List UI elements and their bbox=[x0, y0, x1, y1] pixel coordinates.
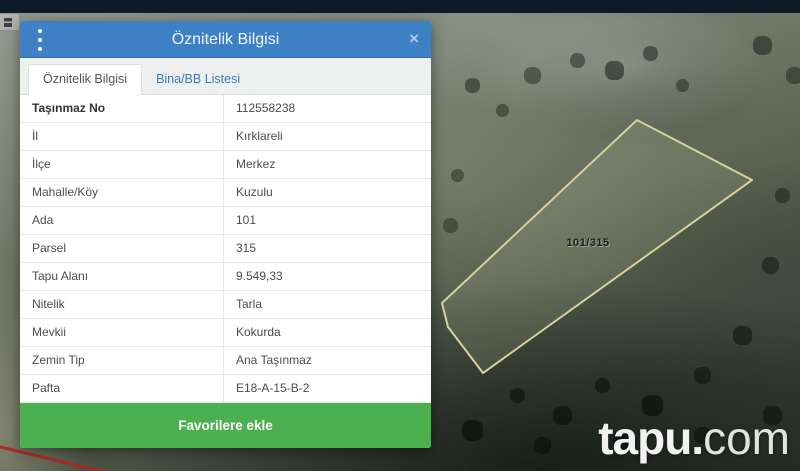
attribute-table: Taşınmaz No 112558238 İl Kırklareli İlçe… bbox=[20, 95, 431, 403]
occluded-ui-fragment[interactable] bbox=[0, 14, 19, 31]
tapu-com-watermark: tapu.com bbox=[598, 415, 790, 461]
row-value: E18-A-15-B-2 bbox=[224, 375, 431, 403]
table-row: Pafta E18-A-15-B-2 bbox=[20, 375, 431, 403]
watermark-light-part: com bbox=[703, 412, 790, 464]
tab-oznitelik-bilgisi[interactable]: Öznitelik Bilgisi bbox=[28, 64, 142, 95]
row-value: Merkez bbox=[224, 151, 431, 179]
dialog-title: Öznitelik Bilgisi bbox=[20, 21, 431, 58]
table-row: İlçe Merkez bbox=[20, 151, 431, 179]
row-value: 112558238 bbox=[224, 95, 431, 123]
row-label: Mevkii bbox=[20, 319, 224, 347]
row-value: Tarla bbox=[224, 291, 431, 319]
dialog-header: Öznitelik Bilgisi × bbox=[20, 21, 431, 58]
cadastral-boundary-line bbox=[0, 444, 109, 471]
add-to-favorites-button[interactable]: Favorilere ekle bbox=[20, 403, 431, 448]
row-value: 101 bbox=[224, 207, 431, 235]
row-label: İl bbox=[20, 123, 224, 151]
row-label: Tapu Alanı bbox=[20, 263, 224, 291]
attribute-info-dialog: Öznitelik Bilgisi × Öznitelik Bilgisi Bi… bbox=[20, 21, 431, 448]
occluded-glyph bbox=[4, 18, 12, 27]
table-row: Mevkii Kokurda bbox=[20, 319, 431, 347]
row-label: Nitelik bbox=[20, 291, 224, 319]
table-row: Zemin Tip Ana Taşınmaz bbox=[20, 347, 431, 375]
row-label: Taşınmaz No bbox=[20, 95, 224, 123]
row-label: Zemin Tip bbox=[20, 347, 224, 375]
watermark-bold-part: tapu. bbox=[598, 412, 703, 464]
table-row: İl Kırklareli bbox=[20, 123, 431, 151]
table-row: Nitelik Tarla bbox=[20, 291, 431, 319]
row-label: Mahalle/Köy bbox=[20, 179, 224, 207]
row-label: Ada bbox=[20, 207, 224, 235]
row-label: İlçe bbox=[20, 151, 224, 179]
row-value: Ana Taşınmaz bbox=[224, 347, 431, 375]
table-row: Parsel 315 bbox=[20, 235, 431, 263]
dialog-tabs: Öznitelik Bilgisi Bina/BB Listesi bbox=[20, 58, 431, 95]
row-value: 315 bbox=[224, 235, 431, 263]
row-label: Parsel bbox=[20, 235, 224, 263]
row-value: Kırklareli bbox=[224, 123, 431, 151]
top-navbar bbox=[0, 0, 800, 13]
row-value: Kuzulu bbox=[224, 179, 431, 207]
table-row: Ada 101 bbox=[20, 207, 431, 235]
tab-bina-bb-listesi[interactable]: Bina/BB Listesi bbox=[142, 65, 254, 94]
app-window: 101/315 101/315 tapu.com Öznitelik Bilgi… bbox=[0, 0, 800, 471]
close-icon[interactable]: × bbox=[409, 21, 419, 58]
table-row: Tapu Alanı 9.549,33 bbox=[20, 263, 431, 291]
table-row: Mahalle/Köy Kuzulu bbox=[20, 179, 431, 207]
table-row: Taşınmaz No 112558238 bbox=[20, 95, 431, 123]
row-value: 9.549,33 bbox=[224, 263, 431, 291]
row-value: Kokurda bbox=[224, 319, 431, 347]
row-label: Pafta bbox=[20, 375, 224, 403]
